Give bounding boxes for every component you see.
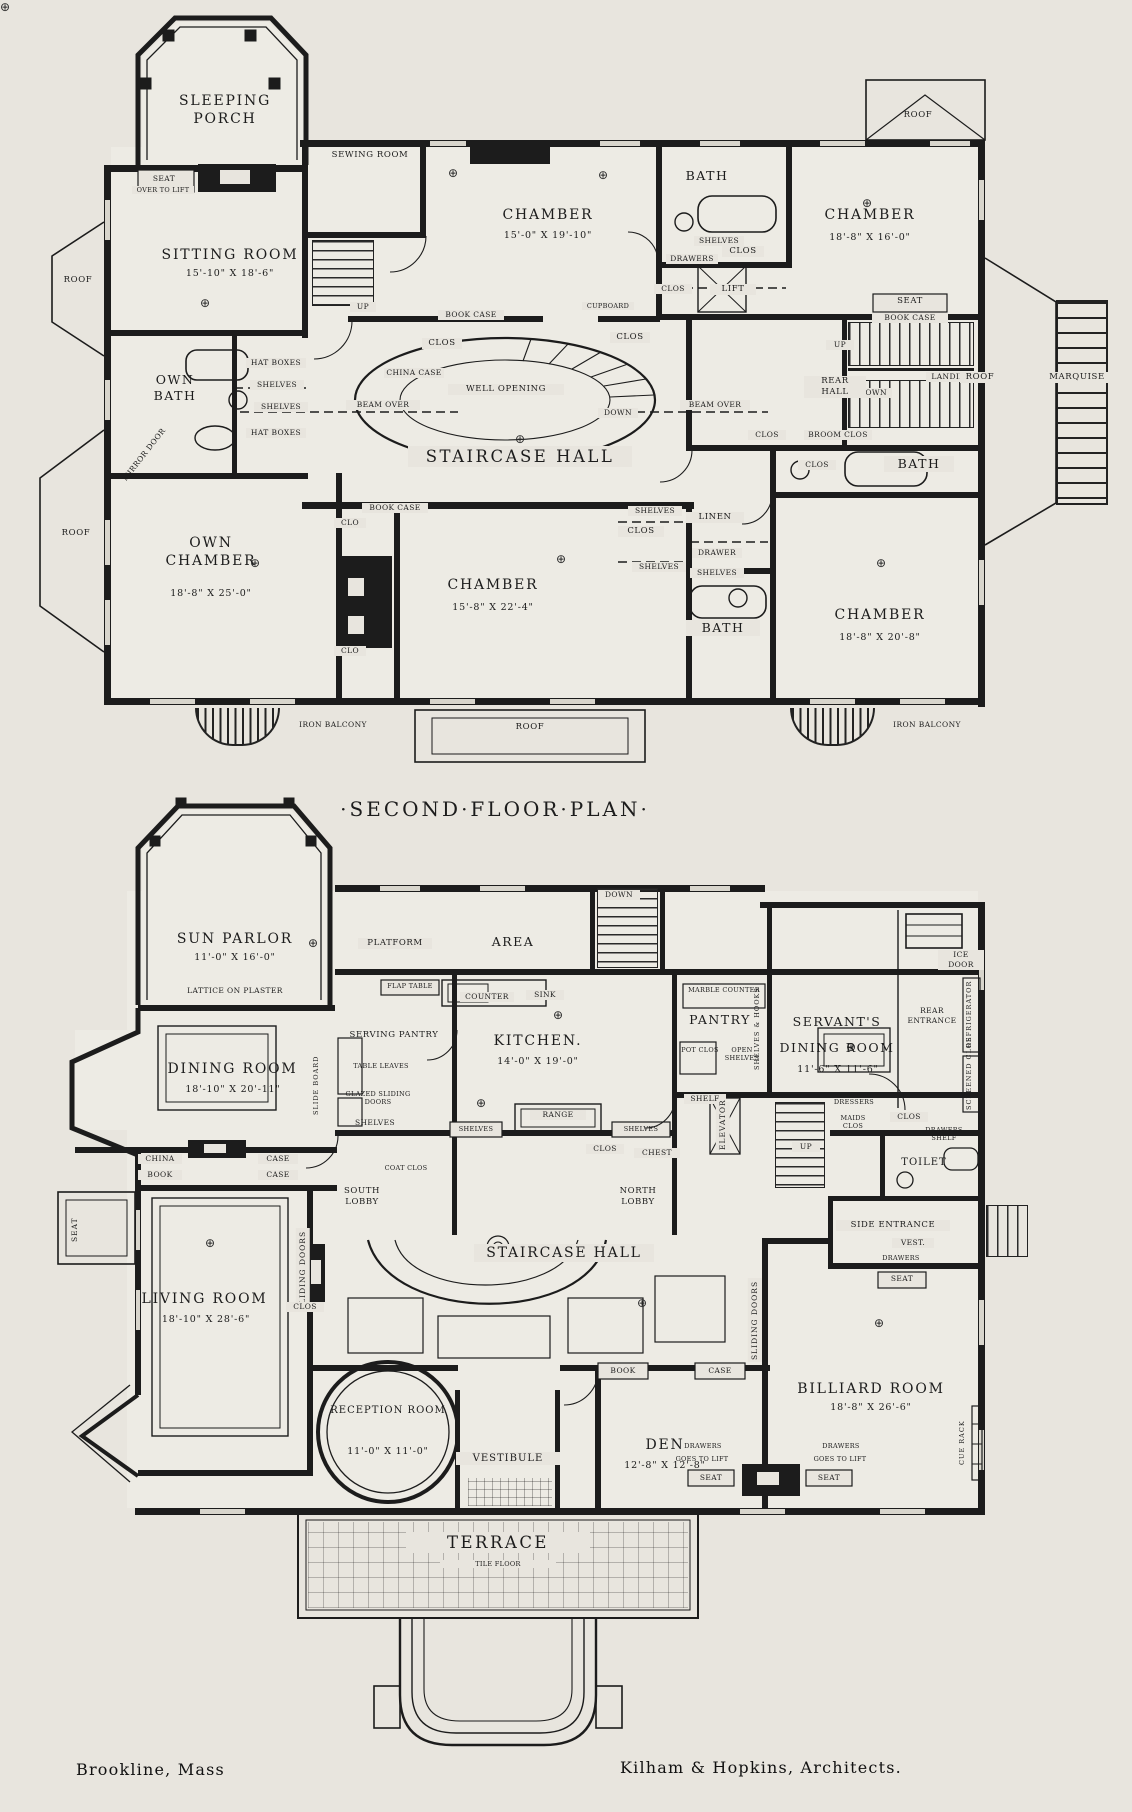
beam-over-label: Beam Over — [346, 400, 420, 410]
up-label: Up — [350, 302, 376, 312]
room-label-chamber: Chamber — [790, 206, 950, 224]
dressers-label: Dressers — [828, 1098, 880, 1106]
room-dims: 18'-8" x 26'-6" — [806, 1402, 936, 1414]
room-label-staircase-hall: Staircase Hall — [474, 1244, 654, 1262]
window — [105, 600, 110, 645]
roof-label: Roof — [56, 528, 96, 539]
light-symbol: ⊕ — [556, 552, 566, 566]
wall — [452, 969, 457, 1235]
sliding-doors-label: Sliding Doors — [296, 1228, 310, 1312]
room-label-billiard-room: Billiard Room — [786, 1380, 956, 1398]
hat-boxes-label: Hat Boxes — [246, 358, 306, 368]
ice-door-label: Ice Door — [938, 950, 984, 970]
clos-label: Clos — [722, 246, 764, 257]
light-symbol: ⊕ — [874, 1316, 884, 1330]
clos-label: Clos — [748, 430, 786, 440]
light-symbol: ⊕ — [0, 0, 10, 14]
wall — [848, 368, 974, 371]
wall — [828, 1263, 985, 1269]
window — [900, 699, 945, 704]
wall — [786, 140, 792, 268]
lift-label: Lift — [710, 284, 756, 295]
window — [880, 1509, 925, 1514]
seat-label: Seat — [70, 1208, 80, 1252]
roof-label: Roof — [58, 275, 98, 286]
drawers-label: Drawers — [876, 1254, 926, 1262]
plan-title: ·Second·Floor·Plan· — [330, 796, 660, 822]
goes-to-lift-label: Goes to Lift — [804, 1455, 876, 1463]
room-label-own-bath: Own Bath — [133, 372, 217, 405]
book-label: Book — [138, 1170, 182, 1180]
room-dims: 15'-10" x 18'-6" — [155, 268, 305, 280]
window — [930, 141, 970, 146]
light-symbol: ⊕ — [515, 432, 525, 446]
goes-to-lift-label: Goes to Lift — [666, 1455, 738, 1463]
room-label-north-lobby: North Lobby — [602, 1186, 674, 1208]
china-label: China — [138, 1154, 182, 1164]
up-label: Up — [826, 340, 854, 350]
wall — [686, 445, 985, 451]
room-label-bath: Bath — [884, 456, 954, 472]
wall — [762, 1238, 768, 1515]
clos-label: Clos — [618, 526, 664, 537]
platform-label: Platform — [358, 938, 432, 949]
blueprint-sheet: ⊕ ⊕ ⊕ ⊕ ⊕ ⊕ ⊕ ⊕ ⊕ ⊕ ⊕ ⊕ ⊕ ⊕ ⊕ ⊕ Sleeping… — [0, 0, 1132, 1812]
wall — [300, 140, 985, 147]
seat-label: Seat — [880, 296, 940, 307]
wall — [590, 885, 595, 973]
drawer-label: Drawer — [692, 548, 742, 558]
window — [136, 1210, 140, 1250]
well-opening-label: Well Opening — [448, 384, 564, 395]
sliding-doors-label: Sliding Doors — [748, 1278, 762, 1362]
wall — [455, 1390, 460, 1510]
shelves-label: Shelves — [690, 568, 744, 578]
room-dims: 18'-10" x 28'-6" — [132, 1314, 280, 1326]
seat-note-label: Over to Lift — [132, 186, 194, 194]
floor1-sunparlor-interior — [142, 810, 328, 1006]
beam-over-label: Beam Over — [680, 400, 750, 410]
window — [250, 699, 295, 704]
wall — [138, 1470, 313, 1476]
case-label: Case — [697, 1366, 743, 1376]
window — [690, 886, 730, 891]
window — [820, 141, 865, 146]
room-dims: 18'-8" x 20'-8" — [810, 632, 950, 644]
marquise-label: Marquise — [1042, 372, 1112, 383]
wall — [302, 232, 426, 238]
room-label-vestibule: Vestibule — [456, 1452, 560, 1465]
room-dims: 11'-6" x 11'-6" — [790, 1064, 886, 1076]
shelves-label: Shelves — [250, 380, 304, 390]
shelves-label: Shelves — [628, 506, 682, 516]
clo-label: Clo — [334, 646, 366, 656]
room-label-kitchen: Kitchen. — [478, 1032, 598, 1050]
clos-label: Clos — [654, 284, 692, 294]
window — [105, 200, 110, 240]
clos-label: Clos — [422, 338, 462, 349]
iron-balcony-right — [790, 708, 875, 746]
wall — [232, 330, 237, 479]
light-symbol: ⊕ — [205, 1236, 215, 1250]
room-dims: 11'-0" x 16'-0" — [175, 952, 295, 964]
light-symbol: ⊕ — [598, 168, 608, 182]
room-label-chamber: Chamber — [468, 206, 628, 224]
range-label: Range — [530, 1110, 586, 1120]
book-case-label: Book Case — [872, 313, 948, 323]
window — [979, 560, 984, 605]
light-symbol: ⊕ — [876, 556, 886, 570]
floor1-diningbay-interior — [75, 1030, 138, 1130]
area-stairs-down — [597, 888, 658, 968]
side-entrance-label: Side Entrance — [836, 1220, 950, 1231]
clos-label: Clos — [890, 1112, 928, 1122]
wall — [104, 330, 308, 336]
room-dims: 14'-0" x 19'-0" — [482, 1056, 594, 1068]
light-symbol: ⊕ — [637, 1296, 647, 1310]
wall — [595, 1365, 601, 1510]
room-label-sun-parlor: Sun Parlor — [160, 930, 310, 948]
glazed-doors-label: Glazed Sliding Doors — [342, 1090, 414, 1107]
light-symbol: ⊕ — [553, 1008, 563, 1022]
wall — [765, 1238, 833, 1244]
cue-rack-label: Cue Rack — [958, 1412, 966, 1474]
wall — [555, 1390, 560, 1510]
case-label: Case — [258, 1170, 298, 1180]
room-dims: 18'-8" x 16'-0" — [802, 232, 938, 244]
book-case-label: Book Case — [362, 503, 428, 513]
wall — [760, 902, 985, 908]
room-label-sewing-room: Sewing Room — [330, 150, 410, 161]
chimney — [470, 140, 550, 164]
china-case-label: China Case — [384, 368, 444, 378]
vestibule-tile-floor — [468, 1478, 552, 1506]
wall — [104, 165, 308, 172]
tile-floor-label: Tile Floor — [440, 1560, 556, 1568]
wall — [336, 473, 342, 705]
window — [700, 141, 740, 146]
clos-label: Clos — [610, 332, 650, 343]
shelves-label: Shelves — [632, 562, 686, 572]
window — [150, 699, 195, 704]
wall — [828, 1196, 833, 1268]
clos-label: Clos — [286, 1302, 324, 1312]
broom-clos-label: Broom Clos — [804, 430, 872, 440]
window — [380, 886, 420, 891]
wall — [310, 1365, 458, 1371]
open-shelves-label: Open Shelves — [719, 1046, 765, 1063]
seat-label: Seat — [140, 174, 188, 184]
wall — [394, 502, 400, 705]
shelves-label: Shelves — [451, 1125, 501, 1133]
drawers-label: Drawers — [814, 1442, 868, 1450]
table-leaves-label: Table Leaves — [352, 1062, 410, 1070]
wall — [770, 492, 776, 705]
cupboard-label: Cupboard — [582, 302, 634, 310]
chest-label: Chest — [634, 1148, 680, 1158]
room-label-chamber: Chamber — [800, 606, 960, 624]
shelves-label: Shelves — [254, 402, 308, 412]
book-label: Book — [600, 1366, 646, 1376]
marble-counter-label: Marble Counter — [686, 986, 762, 994]
roof-label: Roof — [898, 110, 938, 121]
shelves-label: Shelves — [694, 236, 744, 246]
roof-label: Roof — [960, 372, 1000, 383]
wall — [660, 885, 665, 973]
linen-label: Linen — [686, 512, 744, 523]
window — [550, 699, 595, 704]
area-label: Area — [478, 934, 548, 950]
room-label-own-chamber: Own Chamber — [163, 534, 259, 570]
counter-label: Counter — [460, 992, 514, 1002]
room-dims: 18'-10" x 20'-11" — [158, 1084, 308, 1096]
room-label-dining-room: Dining Room — [140, 1060, 325, 1078]
down-label: Down — [598, 890, 640, 900]
room-label-staircase-hall: Staircase Hall — [408, 446, 632, 467]
room-label-sitting-room: Sitting Room — [140, 246, 320, 264]
pot-clos-label: Pot Clos — [681, 1046, 719, 1054]
shelves-label: Shelves — [348, 1118, 402, 1128]
iron-balcony-left — [195, 708, 280, 746]
drawers-label: Drawers — [676, 1442, 730, 1450]
down-label: Down — [598, 408, 638, 418]
clos-label: Clos — [798, 460, 836, 470]
seat-label: Seat — [808, 1473, 850, 1483]
light-symbol: ⊕ — [476, 1096, 486, 1110]
wall — [598, 316, 660, 322]
window — [430, 141, 466, 146]
rear-stairs-upper-flight — [848, 322, 974, 366]
caption-city: Brookline, Mass — [76, 1760, 225, 1779]
wall — [302, 140, 308, 338]
flap-table-label: Flap Table — [382, 982, 438, 990]
shelves-label: Shelves — [613, 1125, 669, 1133]
terrace-label: Terrace — [406, 1532, 590, 1553]
lattice-note: Lattice on Plaster — [166, 986, 304, 996]
wall — [686, 502, 692, 705]
window — [600, 141, 640, 146]
roof-label: Roof — [506, 722, 554, 733]
window — [430, 699, 475, 704]
wall — [420, 140, 426, 238]
room-label-reception-room: Reception Room — [330, 1404, 446, 1417]
room-label-south-lobby: South Lobby — [326, 1186, 398, 1208]
case-label: Case — [258, 1154, 298, 1164]
window — [979, 1300, 984, 1345]
room-dims: 18'-8" x 25'-0" — [140, 588, 282, 600]
window — [200, 1509, 245, 1514]
room-label-sleeping-porch: Sleeping Porch — [155, 92, 295, 128]
room-dims: 15'-0" x 19'-10" — [478, 230, 618, 242]
drawers-label: Drawers — [666, 254, 718, 264]
room-label-serving-pantry: Serving Pantry — [348, 1030, 440, 1041]
room-dims: 11'-0" x 11'-0" — [332, 1446, 444, 1458]
room-label-servants-dining: Dining Room — [778, 1040, 896, 1056]
sink-label: Sink — [526, 990, 564, 1000]
wall — [135, 1508, 985, 1515]
rear-entrance-label: Rear Entrance — [900, 1006, 964, 1026]
hat-boxes-label: Hat Boxes — [246, 428, 306, 438]
room-label-bath: Bath — [686, 620, 760, 636]
room-label-bath: Bath — [672, 168, 742, 184]
wall — [978, 902, 985, 1515]
iron-balcony-label: Iron Balcony — [286, 720, 380, 730]
side-entrance-steps — [986, 1205, 1028, 1257]
window — [105, 520, 110, 565]
room-label-living-room: Living Room — [112, 1290, 297, 1308]
wall — [686, 320, 692, 450]
maids-clos-label: Maids Clos — [830, 1114, 876, 1131]
wall — [978, 140, 985, 707]
clos-label: Clos — [586, 1144, 624, 1154]
room-label-pantry: Pantry — [678, 1012, 762, 1028]
up-label: Up — [792, 1142, 820, 1152]
room-label-servants: Servant's — [782, 1014, 892, 1030]
wall — [880, 1130, 885, 1200]
elevator-label: Elevator — [716, 1102, 730, 1150]
light-symbol: ⊕ — [448, 166, 458, 180]
seat-label: Seat — [880, 1274, 924, 1284]
caption-architects: Kilham & Hopkins, Architects. — [620, 1758, 902, 1777]
window — [480, 886, 525, 891]
drawers-shelf-label: Drawers Shelf — [918, 1126, 970, 1143]
screened-clos-label: Screened Clos — [965, 1058, 973, 1110]
room-label-toilet: Toilet — [892, 1156, 956, 1169]
wall — [828, 1196, 985, 1201]
seat-label: Seat — [690, 1473, 732, 1483]
window — [810, 699, 855, 704]
window — [105, 380, 110, 420]
wall — [770, 445, 776, 498]
light-symbol: ⊕ — [200, 296, 210, 310]
wall — [770, 492, 985, 498]
wall — [75, 1147, 337, 1153]
window — [979, 180, 984, 220]
wall — [138, 1005, 335, 1011]
room-dims: 15'-8" x 22'-4" — [420, 602, 566, 614]
vest-label: Vest. — [892, 1238, 934, 1248]
iron-balcony-label: Iron Balcony — [880, 720, 974, 730]
room-label-rear-hall: Rear Hall — [804, 376, 866, 398]
coat-clos-label: Coat Clos — [384, 1164, 428, 1172]
book-case-label: Book Case — [438, 310, 504, 320]
window — [979, 1430, 984, 1470]
window — [740, 1509, 785, 1514]
wall — [767, 902, 772, 1098]
marquise-awning — [1056, 300, 1108, 505]
room-label-chamber: Chamber — [408, 576, 578, 594]
back-stairs-2f — [312, 240, 374, 306]
clo-label: Clo — [334, 518, 366, 528]
